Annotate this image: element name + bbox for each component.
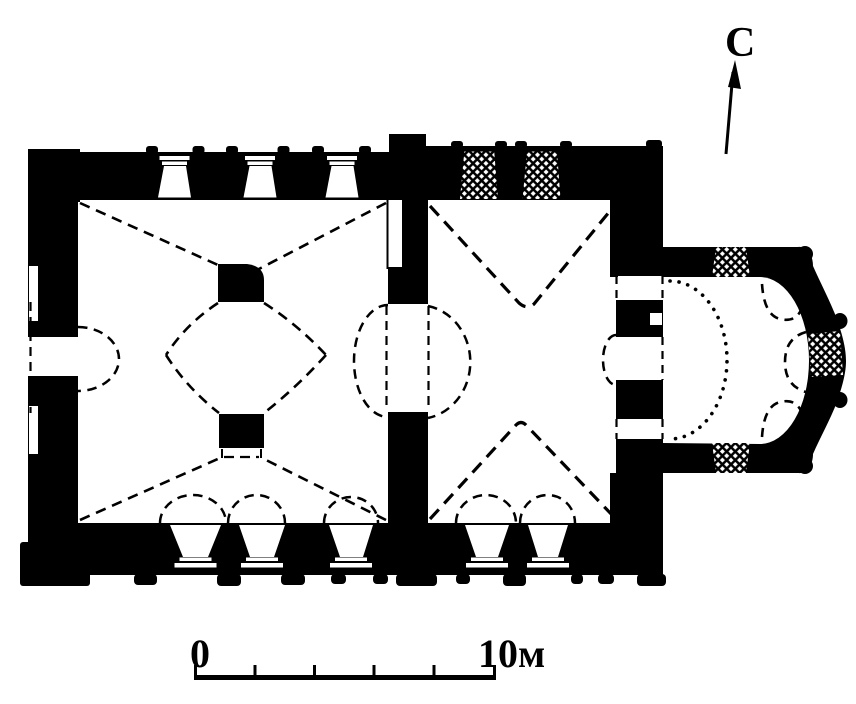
svg-text:С: С: [725, 20, 755, 66]
svg-text:10м: 10м: [478, 631, 545, 676]
svg-text:0: 0: [190, 631, 210, 676]
